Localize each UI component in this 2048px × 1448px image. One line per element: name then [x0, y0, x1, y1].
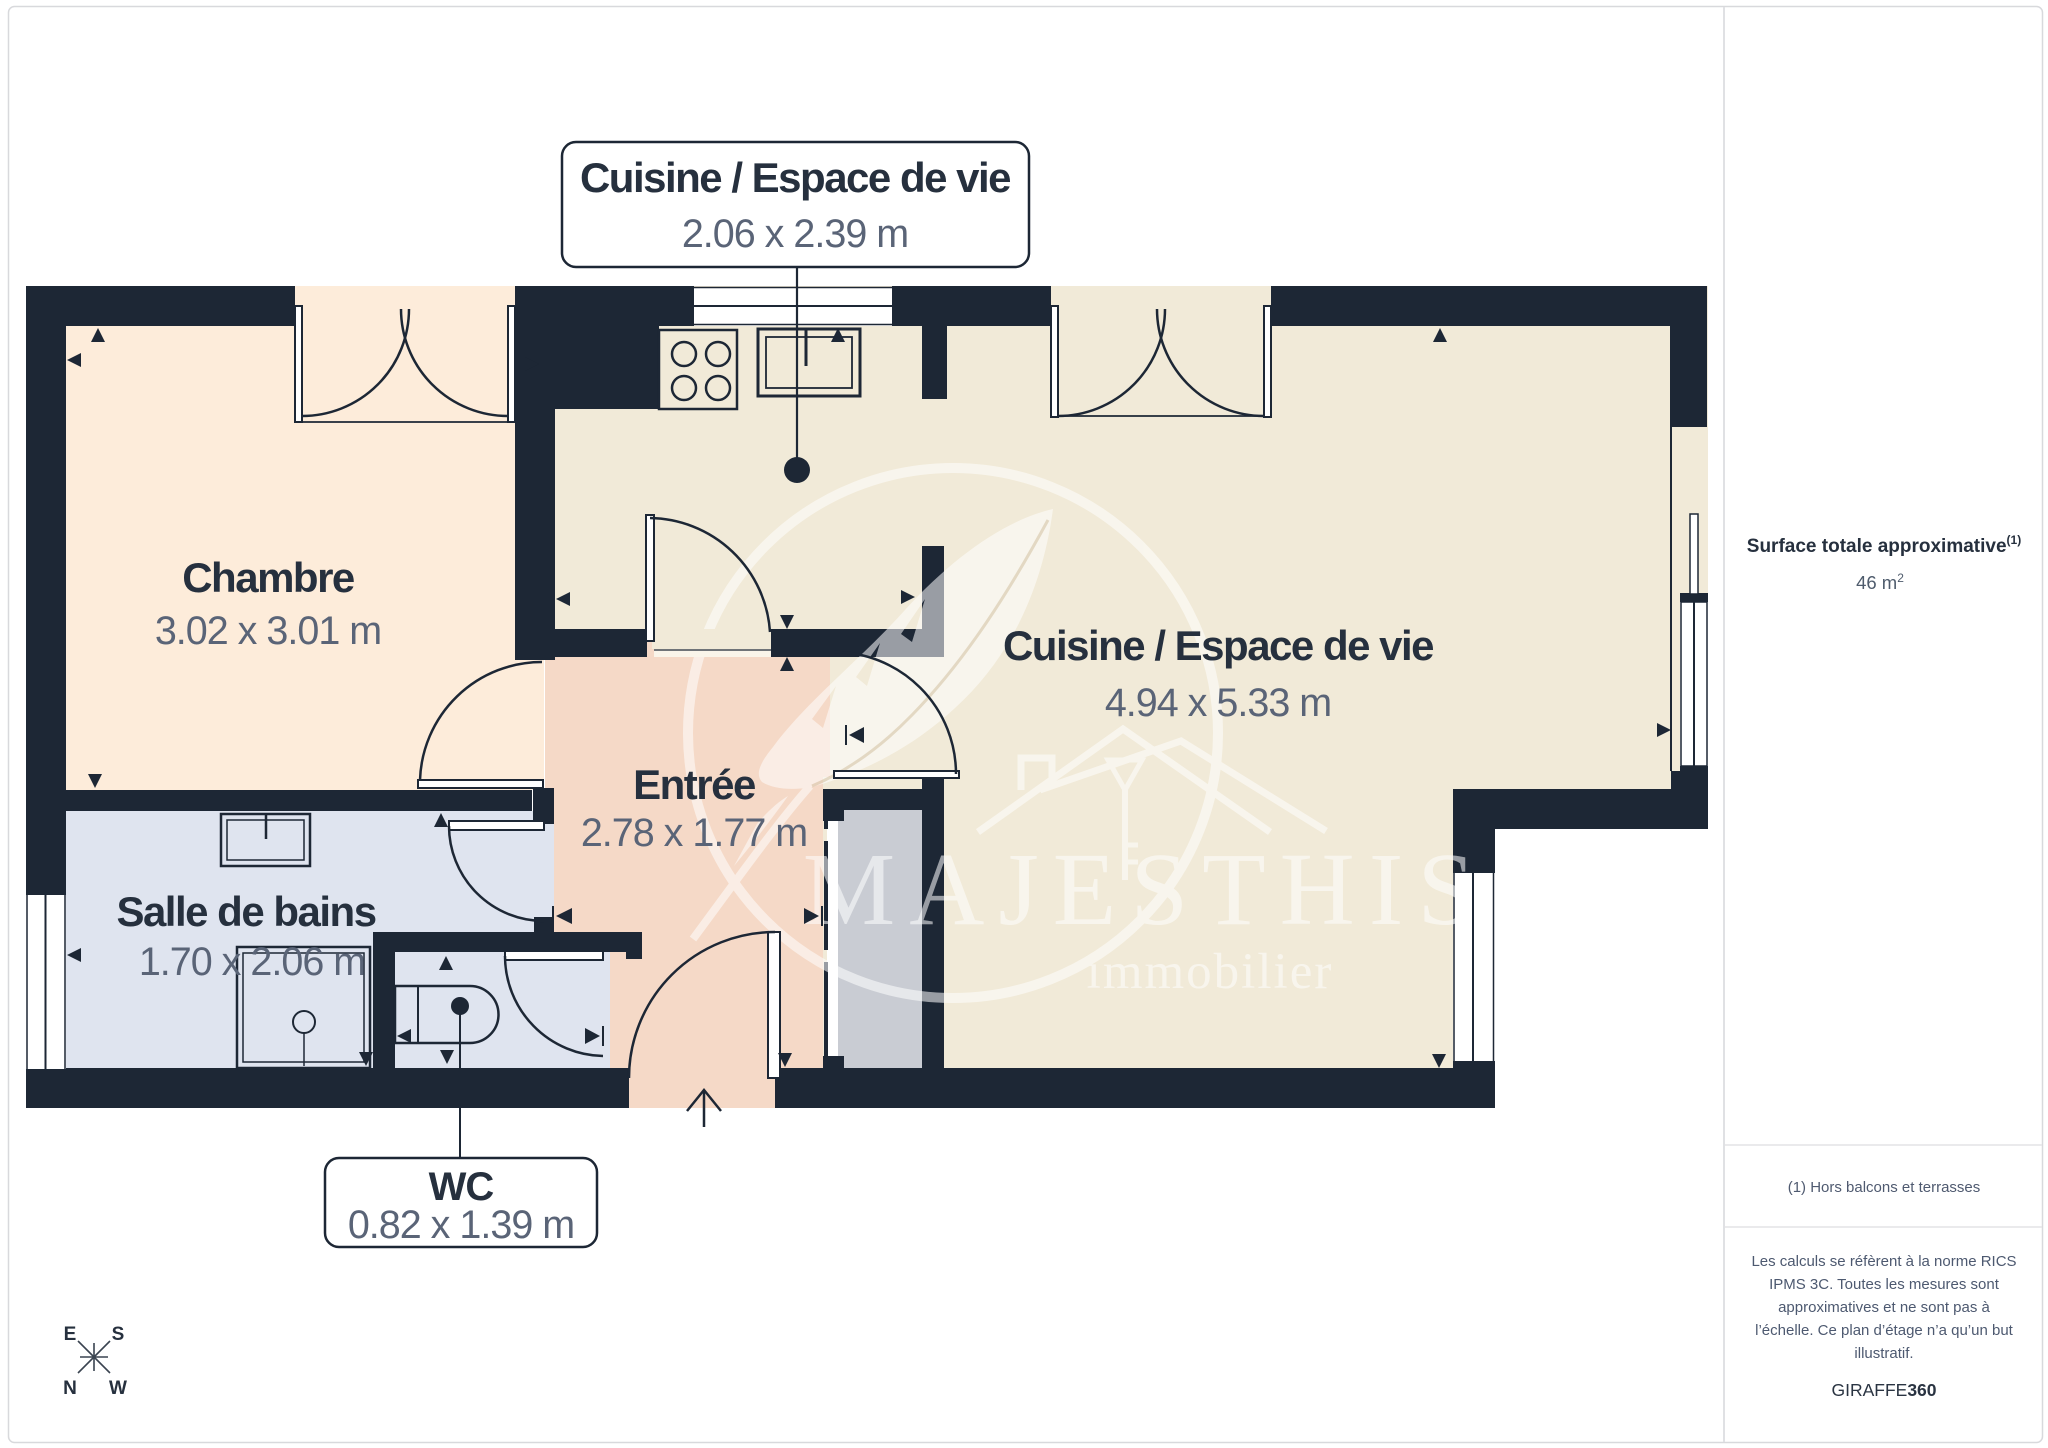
svg-text:immobilier: immobilier: [1087, 944, 1334, 1000]
svg-text:IPMS 3C. Toutes les mesures so: IPMS 3C. Toutes les mesures sont: [1769, 1276, 2000, 1293]
svg-text:Cuisine / Espace de vie: Cuisine / Espace de vie: [1003, 622, 1433, 669]
svg-text:2.06 x 2.39 m: 2.06 x 2.39 m: [682, 212, 908, 256]
svg-text:Chambre: Chambre: [182, 554, 354, 601]
svg-text:Salle de bains: Salle de bains: [116, 888, 375, 935]
svg-text:S: S: [112, 1324, 125, 1345]
svg-text:Cuisine / Espace de vie: Cuisine / Espace de vie: [580, 154, 1010, 201]
svg-text:3.02 x 3.01 m: 3.02 x 3.01 m: [155, 609, 381, 653]
svg-text:Entrée: Entrée: [633, 761, 755, 808]
svg-text:illustratif.: illustratif.: [1854, 1345, 1913, 1362]
svg-text:46 m2: 46 m2: [1856, 571, 1904, 593]
svg-text:4.94 x 5.33 m: 4.94 x 5.33 m: [1105, 681, 1331, 725]
svg-text:E: E: [64, 1324, 77, 1345]
svg-text:Surface totale approximative(1: Surface totale approximative(1): [1747, 533, 2021, 557]
svg-text:W: W: [109, 1378, 127, 1399]
svg-text:0.82 x 1.39 m: 0.82 x 1.39 m: [348, 1203, 574, 1247]
svg-text:1.70 x 2.06 m: 1.70 x 2.06 m: [139, 940, 365, 984]
svg-text:l’échelle. Ce plan d’étage n’a: l’échelle. Ce plan d’étage n’a qu’un but: [1755, 1322, 2014, 1339]
svg-text:MAJESTHIS: MAJESTHIS: [803, 832, 1490, 947]
svg-text:N: N: [63, 1378, 77, 1399]
svg-text:Les calculs se réfèrent à la n: Les calculs se réfèrent à la norme RICS: [1751, 1253, 2016, 1270]
svg-text:GIRAFFE360: GIRAFFE360: [1831, 1380, 1936, 1400]
svg-text:(1) Hors balcons et terrasses: (1) Hors balcons et terrasses: [1788, 1179, 1981, 1196]
svg-text:2.78 x 1.77 m: 2.78 x 1.77 m: [581, 811, 807, 855]
svg-text:approximatives et ne sont pas: approximatives et ne sont pas à: [1778, 1299, 1990, 1316]
